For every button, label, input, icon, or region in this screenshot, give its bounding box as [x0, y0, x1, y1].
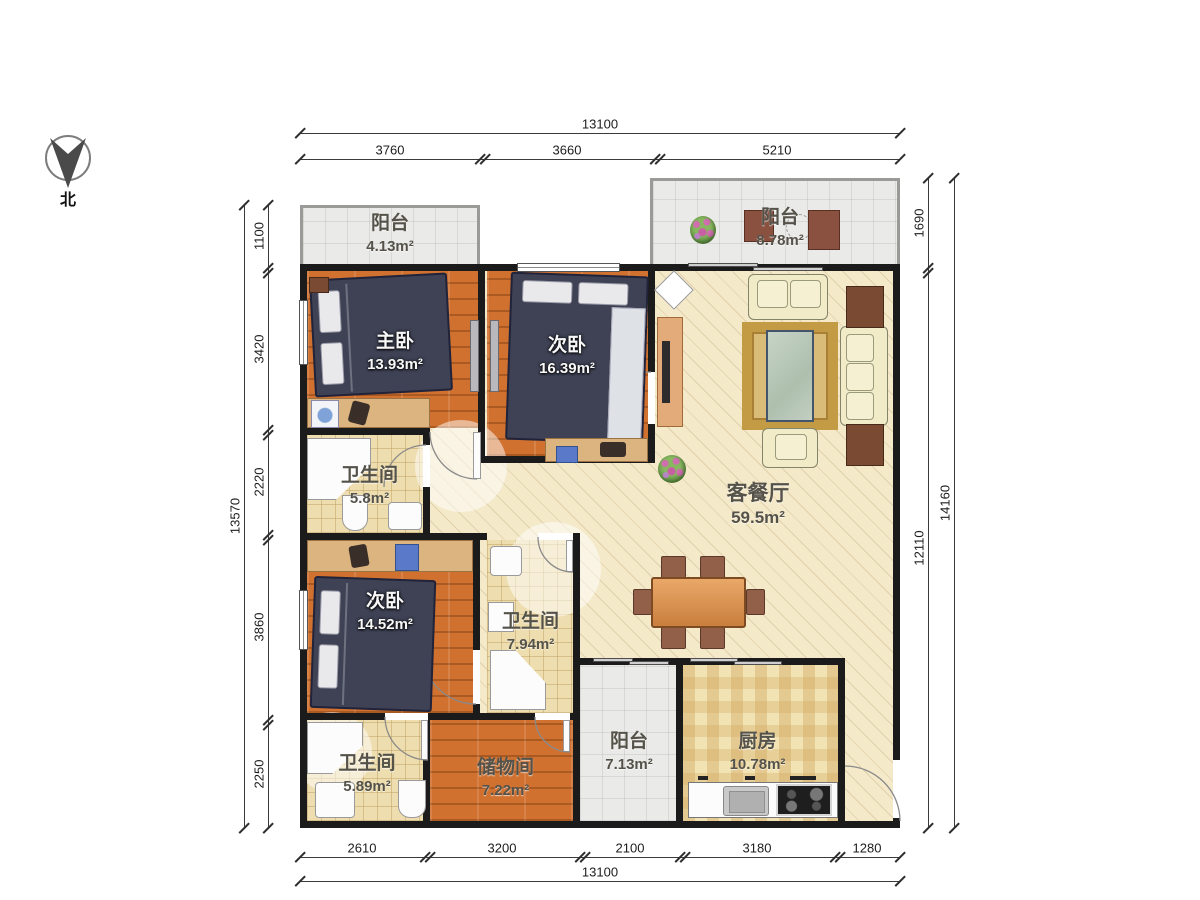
sliding-door: [629, 661, 669, 665]
chair: [556, 446, 578, 463]
tv: [662, 341, 670, 403]
wall: [300, 533, 487, 540]
toilet: [342, 495, 368, 531]
wall: [573, 533, 580, 828]
balcony-wall: [477, 205, 480, 268]
dim-value: 1690: [912, 206, 927, 241]
dim-value: 2610: [345, 841, 380, 856]
sliding-door: [753, 267, 823, 271]
wardrobe-door: [490, 320, 499, 392]
sliding-door: [593, 658, 633, 662]
bedroom2-bed: [505, 272, 649, 445]
wall: [676, 658, 683, 828]
floor-balcony-top-left: [303, 208, 477, 266]
master-bed: [309, 272, 453, 397]
door-opening: [535, 713, 570, 720]
window: [517, 263, 620, 272]
dim-value: 3660: [550, 143, 585, 158]
dining-chair: [700, 556, 725, 578]
dim-value: 1280: [850, 841, 885, 856]
balcony-wall: [650, 178, 900, 181]
dining-chair: [746, 589, 765, 615]
sliding-door: [690, 658, 738, 662]
door-opening: [473, 650, 480, 704]
door-leaf: [421, 720, 428, 760]
balcony-wall: [897, 178, 900, 266]
gas-stove: [776, 784, 832, 816]
dim-value: 5210: [760, 143, 795, 158]
floor-balcony-top-right: [653, 181, 897, 266]
coffee-table: [766, 330, 814, 422]
door-opening: [423, 445, 430, 487]
dim-value: 3420: [252, 332, 267, 367]
dim-line-bottom-total: [300, 881, 900, 882]
dim-line-bottom-segments: [300, 857, 900, 858]
counter-mark: [790, 776, 816, 780]
dim-value: 2250: [252, 757, 267, 792]
dining-chair: [633, 589, 652, 615]
dining-chair: [661, 627, 686, 649]
plant-icon: [658, 455, 686, 483]
bedroom3-bed: [310, 576, 437, 712]
balcony-wall: [650, 178, 653, 266]
sink: [490, 546, 522, 576]
dim-value: 13100: [579, 117, 621, 132]
dining-table: [651, 577, 746, 628]
dim-line-right-segments: [928, 178, 929, 828]
compass-north-label: 北: [60, 186, 76, 210]
plant-icon: [690, 216, 716, 244]
floor-storage: [430, 720, 573, 821]
balcony-chair: [744, 210, 774, 242]
bedroom3-closet: [307, 540, 473, 572]
dim-value: 2100: [613, 841, 648, 856]
door-leaf: [563, 720, 570, 752]
balcony-wall: [300, 205, 480, 208]
wall: [893, 264, 900, 828]
kitchen-sink: [723, 786, 769, 816]
dim-value: 3760: [373, 143, 408, 158]
window: [299, 300, 308, 365]
bag: [348, 544, 370, 569]
toilet: [398, 780, 426, 818]
nightstand: [309, 277, 329, 293]
wall: [838, 658, 845, 828]
door-opening: [893, 760, 900, 818]
loveseat-sofa: [748, 274, 828, 320]
door-opening: [538, 533, 573, 540]
dim-value: 2220: [252, 465, 267, 500]
armchair: [762, 428, 818, 468]
dim-value: 12110: [912, 527, 927, 568]
wardrobe-door: [470, 320, 479, 392]
dim-line-left-segments: [268, 205, 269, 828]
counter-mark: [698, 776, 708, 780]
balcony-wall: [300, 205, 303, 268]
wall: [300, 428, 430, 435]
washing-machine: [311, 400, 339, 428]
north-arrow-icon: [42, 126, 94, 192]
shirt: [395, 544, 419, 571]
window: [299, 590, 308, 650]
dim-line-top-segments: [300, 159, 900, 160]
dim-line-top-total: [300, 133, 900, 134]
washing-machine: [488, 602, 514, 632]
tv-cabinet: [657, 317, 683, 427]
desk-item: [600, 442, 626, 457]
long-sofa: [840, 326, 888, 426]
sink: [315, 782, 355, 818]
wall: [300, 821, 900, 828]
sliding-door: [734, 661, 782, 665]
floorplan-canvas: 北: [0, 0, 1200, 900]
door-leaf: [473, 432, 481, 479]
dim-value: 3180: [740, 841, 775, 856]
sink: [388, 502, 422, 530]
counter-mark: [745, 776, 755, 780]
door-opening: [385, 713, 428, 720]
sliding-door: [688, 263, 758, 267]
dim-value: 1100: [252, 219, 267, 253]
door-opening: [648, 372, 655, 424]
floor-balcony-bottom: [580, 665, 676, 821]
compass: 北: [36, 122, 106, 207]
dim-value: 3200: [485, 841, 520, 856]
wall: [648, 268, 655, 460]
dim-value: 14160: [938, 482, 953, 524]
dim-line-left-total: [244, 205, 245, 828]
side-table: [846, 286, 884, 328]
dim-value: 13100: [579, 865, 621, 880]
dim-value: 13570: [228, 495, 243, 537]
side-table: [846, 424, 884, 466]
dining-chair: [661, 556, 686, 578]
dining-chair: [700, 627, 725, 649]
dim-line-right-total: [954, 178, 955, 828]
balcony-chair: [808, 210, 840, 250]
door-leaf: [566, 540, 573, 572]
dim-value: 3860: [252, 610, 267, 645]
